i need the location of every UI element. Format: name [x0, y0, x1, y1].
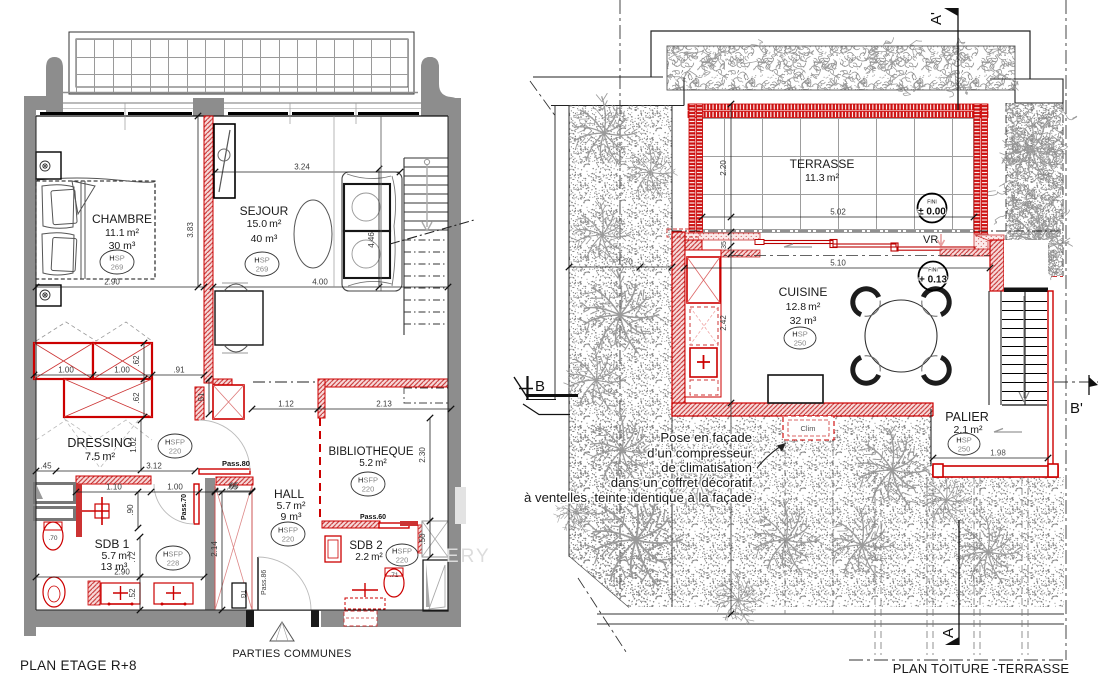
svg-text:± 0.00: ± 0.00 [918, 207, 946, 218]
svg-text:HSFP: HSFP [165, 438, 185, 447]
svg-text:11.1 m²: 11.1 m² [105, 227, 140, 239]
svg-text:1.00: 1.00 [167, 483, 183, 492]
svg-text:269: 269 [111, 263, 124, 272]
svg-text:Pose en façade: Pose en façade [660, 430, 752, 445]
svg-text:4.00: 4.00 [312, 278, 328, 287]
svg-text:1.70: 1.70 [617, 258, 633, 267]
svg-text:SEJOUR: SEJOUR [240, 204, 289, 218]
svg-text:FINI: FINI [927, 200, 936, 206]
svg-text:Pass.86: Pass.86 [261, 570, 268, 595]
svg-text:Pass.80: Pass.80 [222, 459, 250, 468]
svg-text:32 m³: 32 m³ [790, 315, 817, 327]
svg-text:PLAN TOITURE -TERRASSE: PLAN TOITURE -TERRASSE [893, 661, 1070, 676]
svg-text:d’un compresseur: d’un compresseur [647, 446, 752, 461]
svg-text:250: 250 [958, 445, 971, 454]
svg-text:PALIER: PALIER [945, 410, 989, 424]
svg-text:HALL: HALL [274, 487, 304, 501]
svg-text:FINI: FINI [928, 268, 937, 274]
svg-text:.45: .45 [40, 462, 52, 471]
svg-text:5.2 m²: 5.2 m² [359, 458, 387, 469]
svg-text:Clim: Clim [801, 424, 816, 433]
svg-text:1.00: 1.00 [114, 366, 130, 375]
svg-text:HSFP: HSFP [358, 476, 378, 485]
svg-text:2.2 m²: 2.2 m² [355, 552, 383, 563]
svg-text:15.0 m²: 15.0 m² [247, 218, 282, 230]
svg-text:.72: .72 [128, 551, 137, 563]
svg-text:1.10: 1.10 [106, 483, 122, 492]
svg-text:.62: .62 [132, 355, 141, 367]
svg-text:TERRASSE: TERRASSE [790, 157, 855, 171]
svg-text:à ventelles, teinte identique: à ventelles, teinte identique à la façad… [524, 490, 752, 505]
svg-text:250: 250 [794, 339, 807, 348]
svg-text:220: 220 [169, 447, 182, 456]
svg-text:4.46: 4.46 [367, 232, 376, 248]
svg-text:A': A' [928, 12, 945, 25]
svg-text:1.12: 1.12 [278, 400, 294, 409]
svg-text:228: 228 [167, 559, 180, 568]
svg-text:CHAMBRE: CHAMBRE [92, 212, 152, 226]
svg-text:2.42: 2.42 [719, 315, 728, 331]
svg-text:269: 269 [256, 265, 269, 274]
svg-text:3.12: 3.12 [146, 462, 162, 471]
svg-text:40 m³: 40 m³ [251, 233, 278, 245]
svg-text:SDB 2: SDB 2 [349, 540, 382, 552]
svg-text:9 m³: 9 m³ [281, 511, 303, 523]
svg-text:2.20: 2.20 [719, 160, 728, 176]
svg-text:+ 0.13: + 0.13 [919, 275, 948, 286]
svg-text:HSP: HSP [956, 436, 971, 445]
svg-text:HSFP: HSFP [163, 550, 183, 559]
svg-text:B': B' [1070, 400, 1083, 417]
svg-text:DRESSING: DRESSING [67, 436, 132, 450]
svg-text:dans un coffret décoratif: dans un coffret décoratif [611, 475, 753, 490]
svg-text:5.10: 5.10 [830, 259, 846, 268]
svg-text:220: 220 [282, 535, 295, 544]
svg-text:.35: .35 [721, 241, 728, 251]
svg-text:.91: .91 [173, 366, 185, 375]
svg-text:3.83: 3.83 [186, 222, 195, 238]
svg-text:PLAN ETAGE R+8: PLAN ETAGE R+8 [20, 658, 137, 673]
svg-text:220: 220 [362, 485, 375, 494]
svg-text:.70: .70 [48, 535, 57, 542]
svg-text:5.02: 5.02 [830, 208, 846, 217]
svg-text:VR: VR [923, 234, 938, 246]
svg-text:BIBLIOTHEQUE: BIBLIOTHEQUE [329, 446, 414, 458]
svg-text:1.00: 1.00 [58, 366, 74, 375]
svg-text:HSP: HSP [109, 254, 124, 263]
svg-text:7.5 m²: 7.5 m² [85, 451, 116, 463]
svg-text:.71: .71 [389, 572, 398, 579]
svg-text:2.30: 2.30 [418, 447, 427, 463]
svg-text:2.13: 2.13 [376, 400, 392, 409]
svg-text:.90: .90 [126, 504, 135, 516]
svg-text:ERY: ERY [446, 546, 491, 567]
svg-text:TG: TG [239, 590, 245, 599]
svg-text:3.24: 3.24 [294, 163, 310, 172]
svg-text:de climatisation: de climatisation [661, 460, 752, 475]
svg-text:2.90: 2.90 [104, 278, 120, 287]
svg-text:HSFP: HSFP [392, 547, 412, 556]
svg-text:HSP: HSP [792, 330, 807, 339]
svg-text:.62: .62 [132, 392, 141, 404]
svg-text:A: A [940, 628, 957, 638]
svg-text:2.14: 2.14 [210, 541, 219, 557]
svg-text:1.02: 1.02 [129, 437, 138, 453]
svg-text:Pass.60: Pass.60 [360, 514, 386, 521]
svg-text:12.8 m²: 12.8 m² [786, 301, 821, 313]
svg-text:11.3 m²: 11.3 m² [805, 172, 840, 184]
svg-text:B: B [535, 378, 545, 395]
svg-text:SDB 1: SDB 1 [95, 537, 130, 551]
svg-text:1.98: 1.98 [990, 449, 1006, 458]
svg-text:Pass.70: Pass.70 [181, 494, 188, 520]
svg-text:PARTIES COMMUNES: PARTIES COMMUNES [232, 648, 351, 660]
svg-text:CUISINE: CUISINE [779, 285, 828, 299]
svg-text:2.90: 2.90 [114, 568, 130, 577]
svg-text:220: 220 [396, 556, 409, 565]
svg-text:.65: .65 [227, 482, 239, 491]
svg-text:HSP: HSP [254, 256, 269, 265]
svg-text:.50: .50 [418, 533, 427, 545]
svg-text:.52: .52 [128, 588, 137, 600]
svg-text:HSFP: HSFP [278, 526, 298, 535]
svg-text:.51: .51 [197, 392, 206, 404]
